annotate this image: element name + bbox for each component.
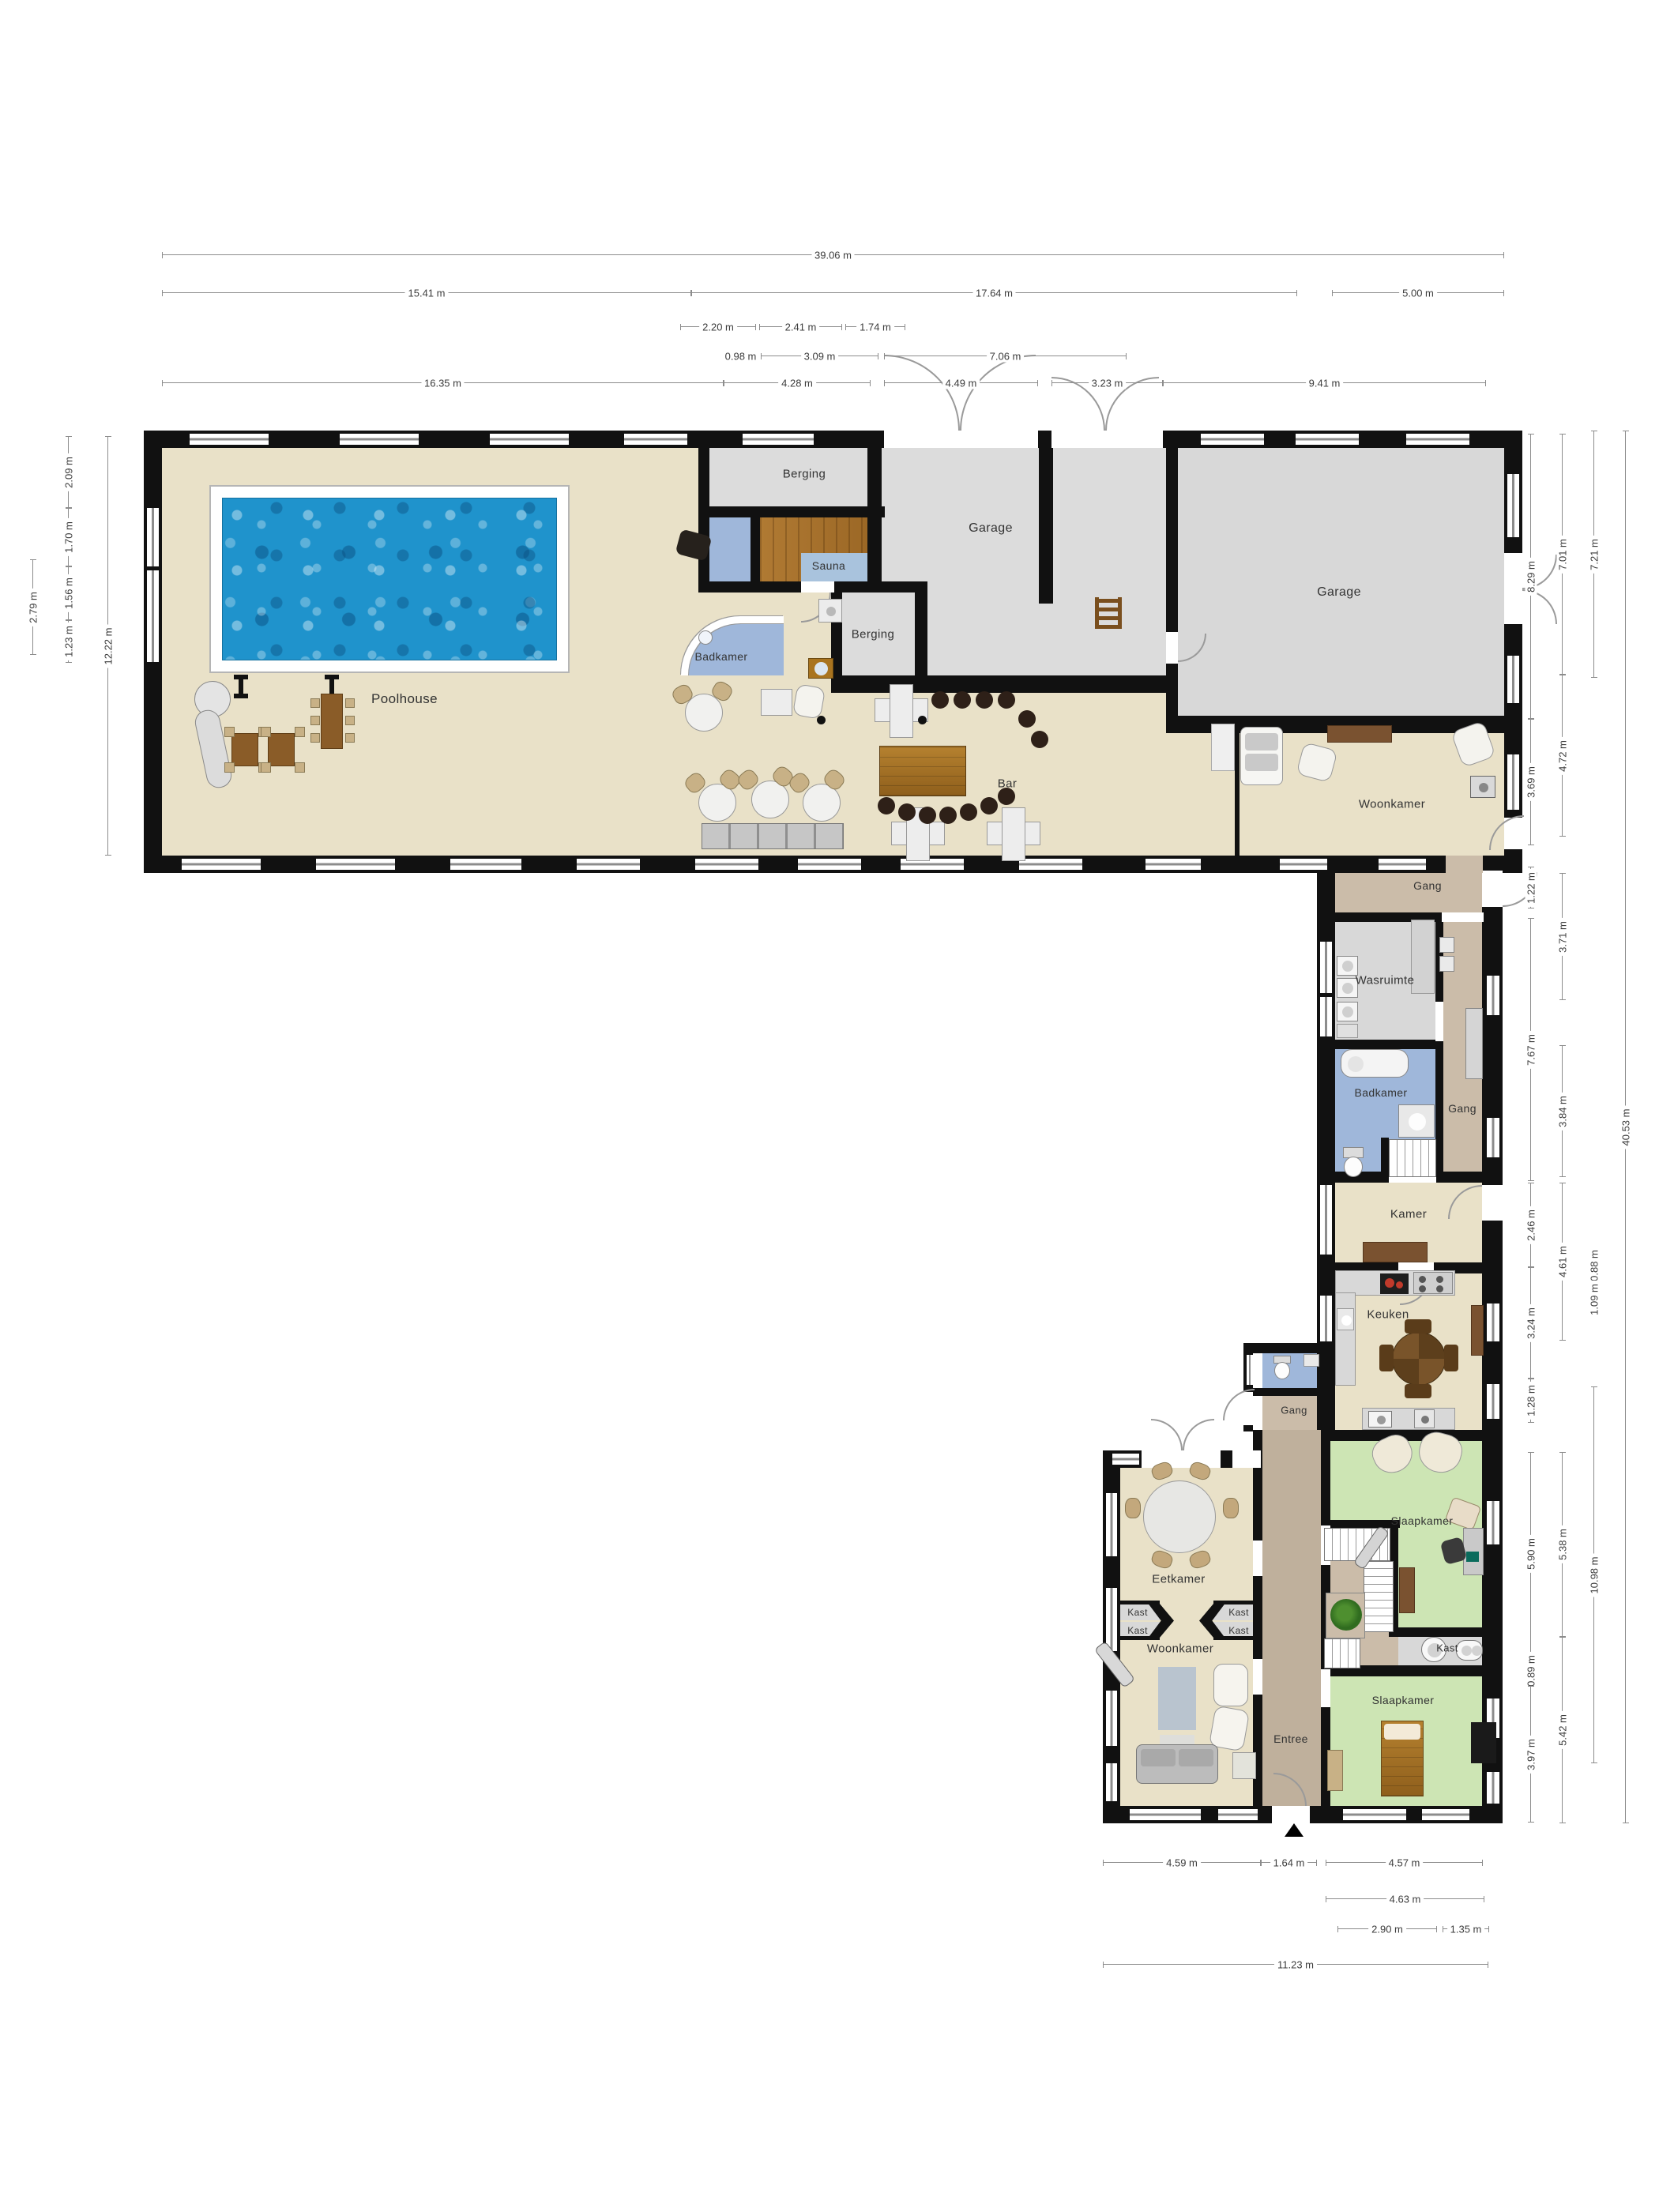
dimension-label: 2.79 m [28,589,39,626]
dim-tick [1051,380,1052,386]
washing-machine [1337,956,1358,976]
wall [1381,1138,1389,1173]
door-opening [1504,553,1522,624]
dimension-horizontal: 4.59 m [1103,1855,1261,1871]
staircase [1364,1561,1394,1632]
dim-tick [1559,1183,1566,1183]
dim-tick [680,324,681,330]
room-label: Kast [1228,1625,1249,1636]
table [231,733,258,766]
parasol-icon [234,694,248,698]
kitchen-counter [1335,1292,1356,1386]
dimension-vertical: 4.61 m [1555,1183,1571,1341]
room-label: Berging [852,628,895,641]
window [1487,1118,1499,1157]
dimension-label: 0.88 m [1589,1247,1601,1285]
door-opening [1253,1659,1262,1695]
dim-tick [691,290,692,296]
door-opening [1272,1806,1310,1823]
dimension-label: 1.09 m [1589,1281,1601,1319]
dim-tick [1528,1822,1534,1823]
chair [1223,1498,1239,1518]
dimension-label: 17.64 m [972,288,1016,299]
floor-plan: PoolhouseBergingSaunaGarageGarageBerging… [0,0,1659,2212]
bar-stool [976,691,993,709]
dimension-vertical: 1.23 m [61,620,77,663]
door-opening [1442,912,1484,922]
dim-tick [1326,1896,1326,1902]
dim-tick [724,380,724,386]
dimension-vertical: 5.38 m [1555,1452,1571,1637]
dimension-label: 3.69 m [1525,763,1537,801]
detail-dot [1419,1276,1426,1283]
window [577,859,640,870]
dimension-label: 15.41 m [405,288,449,299]
window [624,434,687,445]
window [182,859,261,870]
chair [261,727,271,737]
chair [1125,1498,1141,1518]
dim-tick [1528,1379,1534,1379]
dim-tick [1488,1926,1489,1932]
dimension-horizontal: 2.41 m [759,319,842,335]
window [1106,1691,1117,1746]
dimension-horizontal: 1.35 m [1443,1921,1489,1937]
dim-tick [1296,290,1297,296]
window [1280,859,1327,870]
dim-tick [841,324,842,330]
chair [310,698,320,708]
dim-tick [761,353,762,359]
laundry-basket [1337,1024,1358,1038]
door-arc [1151,1419,1183,1450]
door-arc [1223,1389,1255,1420]
window [1343,1809,1406,1820]
room-label: Garage [1317,585,1361,600]
dimension-vertical: 10.98 m [1586,1386,1602,1763]
dimension-label: 1.23 m [63,623,75,660]
dimension-label: 7.67 m [1525,1031,1537,1069]
door-opening [1435,1002,1443,1041]
floor-patch [1262,1430,1321,1441]
room-label: Berging [783,468,826,481]
bar-stool [898,803,916,821]
dim-tick [1326,1860,1326,1866]
dimension-label: 11.23 m [1274,1959,1317,1971]
wall [1389,1627,1482,1637]
window [1112,1454,1139,1465]
room-label: Entree [1273,1732,1308,1745]
pillar [817,716,826,724]
wall [1317,1040,1435,1049]
room-floor-gang-top [1335,867,1484,912]
dim-tick [1559,999,1566,1000]
table-cross [1002,807,1025,861]
wall [867,448,882,592]
table-cross [890,684,913,738]
wall [831,675,1166,693]
dimension-label: 16.35 m [421,378,465,389]
dim-tick [1623,431,1629,431]
dim-tick [66,436,72,437]
armchair [1213,1664,1248,1706]
dim-tick [1528,434,1534,434]
room-label: Wasruimte [1356,974,1415,987]
dim-tick [884,353,885,359]
window [1487,1303,1499,1341]
dimension-vertical: 1.22 m [1523,867,1539,908]
dim-tick [1528,867,1534,867]
dim-tick [30,654,36,655]
dimension-label: 3.23 m [1089,378,1127,389]
dim-tick [1103,1962,1104,1968]
dimension-label: 1.28 m [1525,1382,1537,1420]
dim-tick [1591,1386,1597,1387]
detail-dot [1436,1285,1443,1292]
dimension-label: 2.90 m [1368,1924,1406,1935]
dimension-vertical: 3.97 m [1523,1686,1539,1823]
door-arc [884,355,960,431]
dimension-label: 40.53 m [1620,1105,1632,1149]
dimension-vertical: 7.01 m [1555,434,1571,675]
entrance-arrow [1285,1823,1303,1837]
bar-stool [1018,710,1036,728]
dim-tick [905,324,905,330]
wall [1235,733,1240,856]
chair [1379,1345,1394,1371]
window [340,434,419,445]
door-opening [1232,1450,1261,1468]
door-opening [1321,1669,1330,1707]
table-long [321,694,343,749]
dimension-label: 2.41 m [782,322,820,333]
window [1130,1809,1201,1820]
stove [1470,776,1495,798]
room-label: Keuken [1367,1308,1409,1322]
window [1487,976,1499,1015]
toilet [1344,1157,1363,1177]
window [798,859,861,870]
counter [1411,920,1435,994]
dim-tick [1503,290,1504,296]
dim-tick [1559,873,1566,874]
chair [295,727,305,737]
chair [345,716,355,725]
wardrobe [1399,1567,1415,1613]
dimension-vertical: 2.46 m [1523,1183,1539,1267]
washing-machine [1337,1002,1358,1021]
bar-stool [931,691,949,709]
staircase [1389,1139,1436,1177]
dimension-label: 1.70 m [63,518,75,556]
dim-tick [66,508,72,509]
cushion [1179,1749,1213,1766]
dimension-horizontal: 4.49 m [884,375,1038,391]
shower-head [698,630,713,645]
cushion [1141,1749,1176,1766]
wardrobe [1465,1008,1483,1079]
pillar [918,716,927,724]
wall [1166,448,1178,716]
chair [345,733,355,743]
chair [1444,1345,1458,1371]
detail-dot [1421,1416,1429,1424]
door-opening [1166,632,1178,664]
room-label: Kast [1436,1642,1458,1654]
dim-tick [1528,1686,1534,1687]
dim-tick [1559,1452,1566,1453]
door-arc [1183,1419,1214,1450]
chair [1405,1384,1431,1398]
dimension-label: 5.90 m [1525,1535,1537,1573]
dimension-label: 9.41 m [1306,378,1344,389]
dimension-label: 1.35 m [1447,1924,1485,1935]
dimension-label: 4.63 m [1386,1894,1424,1905]
dim-tick [1443,1926,1443,1932]
dim-tick [1559,675,1566,675]
dimension-label: 4.59 m [1163,1857,1201,1869]
dimension-vertical: 5.90 m [1523,1452,1539,1655]
cushion [1245,733,1278,750]
detail-dot [1479,783,1488,792]
wall [1482,867,1503,1452]
window [1487,1384,1499,1419]
dim-tick [30,559,36,560]
chair [224,762,235,773]
dimension-label: 2.09 m [63,453,75,491]
dim-tick [759,324,760,330]
dim-tick [878,353,878,359]
room-label: Slaapkamer [1391,1514,1454,1527]
door-opening [1051,431,1163,448]
boiler [1439,937,1454,953]
bar-stool [980,797,998,814]
window [1507,754,1519,810]
parasol-icon [329,678,334,695]
bench [1327,1750,1343,1791]
floor-patch [1446,856,1483,873]
dimension-horizontal: 1.64 m [1261,1855,1317,1871]
detail-dot [1461,1646,1472,1656]
dim-tick [1528,1422,1534,1423]
dim-tick [755,324,756,330]
dim-tick [1559,1176,1566,1177]
dim-tick [845,324,846,330]
dimension-label: 0.89 m [1525,1652,1537,1690]
dim-tick [1559,1340,1566,1341]
chair [345,698,355,708]
bar-stool [878,797,895,814]
wall [915,581,927,675]
dimension-horizontal: 3.09 m [761,348,878,364]
window [1247,1355,1253,1385]
dimension-horizontal: 17.64 m [691,285,1297,301]
dimension-vertical: 12.22 m [100,436,116,856]
dimension-horizontal: 2.90 m [1337,1921,1437,1937]
window [147,570,159,662]
dimension-vertical: 2.79 m [25,559,41,655]
window [1422,1809,1469,1820]
dim-tick [1332,290,1333,296]
bar-stool [998,691,1015,709]
dimension-horizontal: 4.57 m [1326,1855,1483,1871]
window [743,434,814,445]
dim-tick [105,855,111,856]
dimension-label: 1.64 m [1270,1857,1308,1869]
dim-tick [1103,1860,1104,1866]
dim-tick [1316,1860,1317,1866]
dimension-horizontal: 1.74 m [845,319,905,335]
plant [1330,1599,1362,1631]
detail-dot [814,662,828,675]
toilet [1274,1362,1290,1379]
window [1487,1501,1499,1544]
dimension-label: 5.38 m [1557,1525,1569,1563]
dimension-label: 4.28 m [778,378,816,389]
dim-tick [1503,252,1504,258]
bar-counter [879,746,966,796]
dim-tick [1623,1823,1629,1823]
window [1218,1809,1258,1820]
dimension-label: 4.57 m [1386,1857,1424,1869]
bar-stool [954,691,971,709]
extractor-fan [1414,1409,1435,1428]
dim-tick [1485,380,1486,386]
window [1406,434,1469,445]
dimension-vertical: 7.67 m [1523,918,1539,1181]
shower [818,599,842,623]
pillow [1384,1724,1420,1740]
bar-stool [919,807,936,824]
detail-dot [1348,1056,1364,1072]
dining-table-round [1143,1480,1216,1553]
ladder [1095,597,1122,629]
kitchen-sink [1337,1308,1354,1330]
dimension-horizontal: 0.98 m [724,348,758,364]
washbasin-cabinet [808,658,833,679]
door-arc [960,355,1036,431]
dimension-label: 4.72 m [1557,737,1569,775]
room-label: Kast [1228,1607,1249,1618]
dim-tick [1528,1183,1534,1183]
dim-tick [1337,1926,1338,1932]
dimension-vertical: 2.09 m [61,436,77,508]
dimension-horizontal: 15.41 m [162,285,691,301]
bathtub [1341,1049,1409,1078]
window [1106,1493,1117,1556]
dimension-label: 39.06 m [811,250,855,261]
detail-dot [1341,1315,1352,1326]
dimension-label: 7.21 m [1589,536,1601,574]
dimension-label: 5.00 m [1399,288,1437,299]
dimension-horizontal: 9.41 m [1163,375,1486,391]
dim-tick [1559,1637,1566,1638]
room-label: Garage [969,521,1013,536]
dimension-label: 7.01 m [1557,536,1569,574]
washbasin [1303,1354,1319,1367]
room-floor-toilet-pool [709,517,750,581]
dimension-label: 2.46 m [1525,1206,1537,1244]
dimension-label: 3.71 m [1557,918,1569,956]
door-opening [1482,1185,1503,1221]
dining-table-round [1392,1332,1446,1386]
dimension-label: 3.09 m [801,351,839,363]
dimension-horizontal: 11.23 m [1103,1957,1488,1973]
window [1145,859,1201,870]
dimension-vertical: 0.88 m [1586,1251,1602,1281]
room-label: Kamer [1390,1208,1427,1221]
chair [310,733,320,743]
dimension-vertical: 3.69 m [1523,719,1539,845]
dimension-vertical: 1.70 m [61,508,77,566]
dim-tick [1528,1180,1534,1181]
cabinet [1211,724,1235,771]
wall [709,506,885,517]
dimension-vertical: 1.28 m [1523,1379,1539,1423]
chair [261,762,271,773]
dim-tick [1163,380,1164,386]
dim-tick [1436,1926,1437,1932]
window [490,434,569,445]
dim-tick [1528,719,1534,720]
dimension-label: 3.24 m [1525,1304,1537,1342]
detail-dot [1472,1646,1482,1656]
window [1320,997,1332,1036]
dim-tick [66,620,72,621]
dimension-horizontal: 4.28 m [724,375,871,391]
room-label: Sauna [812,559,845,572]
dim-tick [162,380,163,386]
dim-tick [1488,1962,1488,1968]
dimension-horizontal: 16.35 m [162,375,724,391]
bar-stool [960,803,977,821]
room-label: Woonkamer [1359,798,1425,811]
dimension-vertical: 40.53 m [1618,431,1634,1823]
dim-tick [1591,677,1597,678]
room-floor-garage-right [1178,448,1504,716]
dimension-label: 1.22 m [1525,869,1537,907]
laptop [1466,1552,1479,1562]
dim-tick [1559,836,1566,837]
dim-tick [1528,845,1534,845]
dim-tick [1591,431,1597,431]
detail-dot [1436,1276,1443,1283]
door-opening [1253,1540,1262,1576]
window [695,859,758,870]
window [1507,474,1519,537]
ceramic-hob [1380,1273,1409,1294]
bench [702,823,844,849]
oven [1368,1411,1392,1428]
chair [224,727,235,737]
staircase [1324,1638,1360,1668]
dimension-horizontal: 39.06 m [162,247,1504,263]
dimension-vertical: 5.42 m [1555,1637,1571,1823]
window [1106,1763,1117,1801]
sink [1398,1104,1435,1138]
dimension-label: 0.98 m [722,351,760,363]
dimension-label: 1.74 m [856,322,894,333]
dim-tick [1591,1762,1597,1763]
detail-dot [826,607,836,616]
dimension-horizontal: 5.00 m [1332,285,1504,301]
dim-tick [1528,908,1534,908]
boiler [1439,956,1454,972]
room-label: Badkamer [694,650,747,663]
room-label: Eetkamer [1152,1573,1205,1586]
dim-tick [1559,1045,1566,1046]
dim-tick [1559,434,1566,434]
